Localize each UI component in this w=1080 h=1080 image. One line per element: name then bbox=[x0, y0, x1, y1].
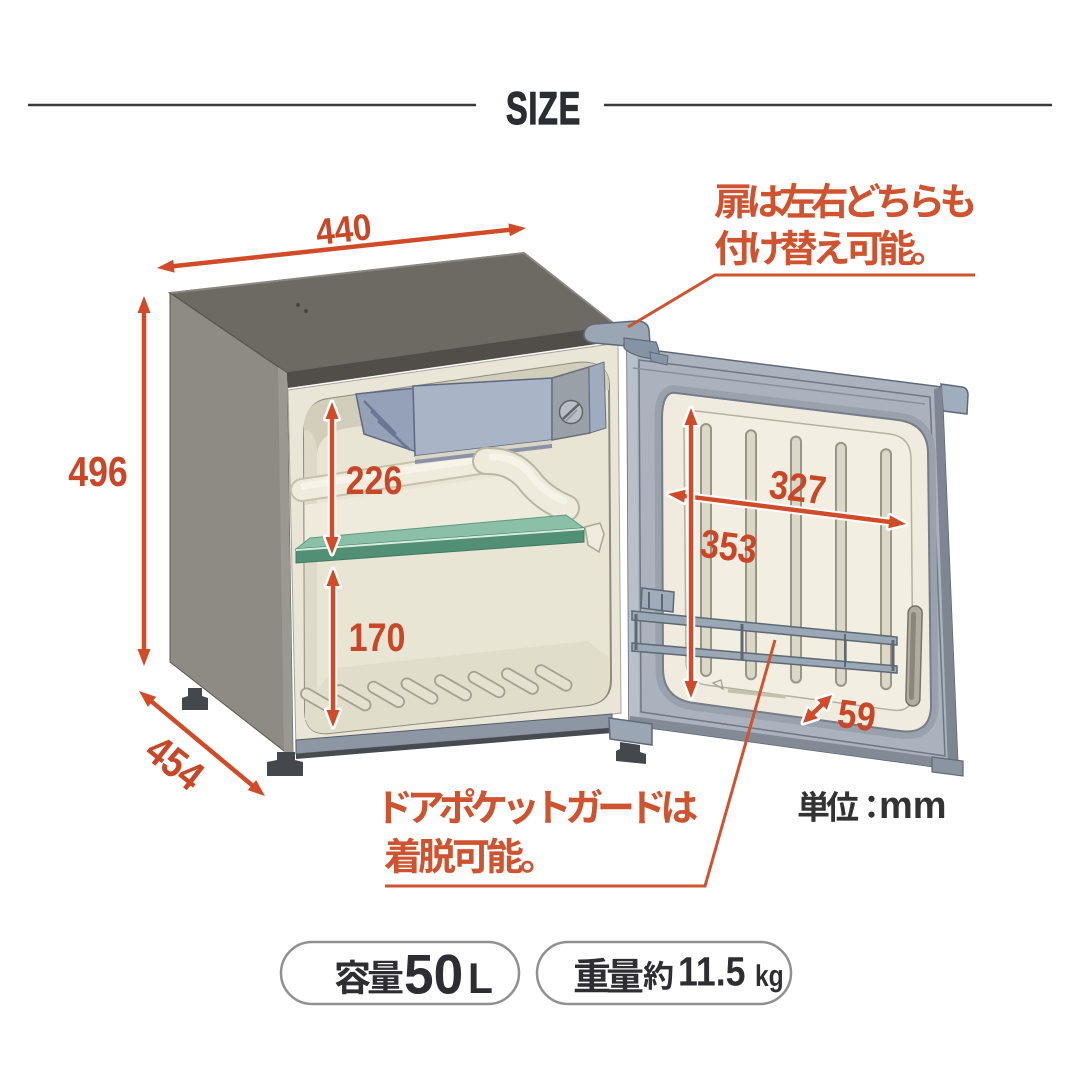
svg-text:226: 226 bbox=[346, 459, 403, 503]
svg-text:50: 50 bbox=[404, 943, 463, 1006]
svg-text:327: 327 bbox=[767, 463, 829, 514]
svg-text:kg: kg bbox=[755, 960, 784, 993]
svg-text:353: 353 bbox=[698, 522, 760, 573]
svg-text:170: 170 bbox=[349, 616, 406, 660]
svg-text:SIZE: SIZE bbox=[506, 82, 581, 134]
svg-text:11.5: 11.5 bbox=[678, 949, 745, 995]
svg-text:496: 496 bbox=[68, 448, 128, 495]
svg-text:L: L bbox=[468, 955, 493, 1003]
svg-text:59: 59 bbox=[835, 692, 878, 740]
svg-text:440: 440 bbox=[314, 206, 374, 253]
svg-text:mm: mm bbox=[879, 785, 947, 827]
